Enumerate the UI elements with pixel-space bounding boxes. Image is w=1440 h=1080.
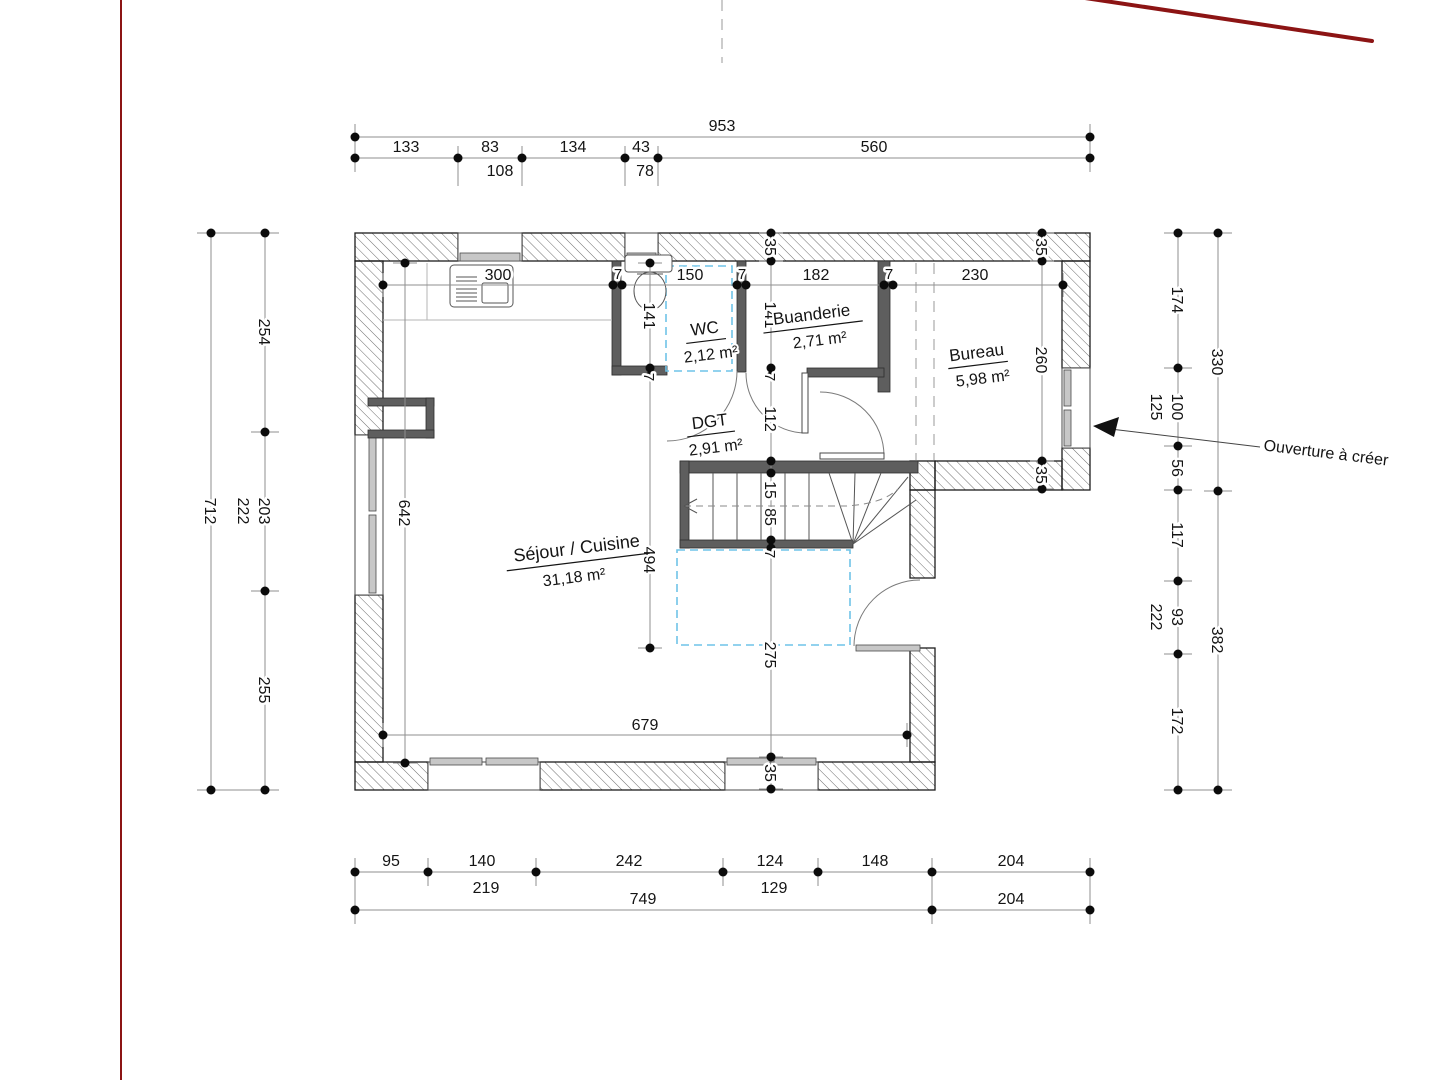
room-label-dgt: DGT 2,91 m² [684, 408, 744, 459]
dim-bureau-width: 230 [962, 267, 989, 284]
dim-left-1: 254 [255, 319, 272, 346]
dim-dgt-height: 112 [761, 406, 778, 432]
dim-stair15: 15 [761, 481, 778, 499]
stair-opening-dashed-zone [677, 550, 850, 645]
overhead-projection-lines [916, 263, 934, 460]
dim-right-1: 174 [1168, 287, 1185, 314]
dim-left-total: 712 [201, 498, 218, 525]
dim-wall7-e: 7 [761, 373, 778, 381]
dim-bottom-2: 140 [469, 853, 496, 870]
dim-wall7-a: 7 [614, 266, 622, 283]
dim-wc-depth: 141 [640, 303, 657, 330]
room-name-dgt: DGT [691, 410, 729, 433]
dim-top-2: 83 [481, 139, 499, 156]
dim-top-4: 43 [632, 139, 650, 156]
dim-right-2: 100 [1168, 394, 1185, 421]
dim-left-2: 203 [255, 498, 272, 525]
dim-wall35-a: 35 [761, 238, 778, 256]
dim-wall7-b: 7 [738, 266, 746, 283]
room-area-sejour: 31,18 m² [542, 566, 607, 591]
room-name-wc: WC [689, 317, 719, 339]
room-label-wc: WC 2,12 m² [679, 315, 739, 366]
sejour-east-door [854, 580, 920, 651]
sejour-bottom-window-1 [428, 758, 540, 790]
dim-win35: 35 [761, 764, 778, 782]
dim-left-sub: 222 [234, 498, 251, 525]
dim-top-1: 133 [393, 139, 420, 156]
dim-bottom-sub-1: 219 [473, 880, 500, 897]
staircase [684, 473, 916, 544]
dim-top-5: 560 [861, 139, 888, 156]
dim-top-sub-2: 78 [636, 163, 654, 180]
dim-kitchen: 300 [485, 267, 512, 284]
dim-mid-height: 494 [640, 547, 657, 574]
dim-wc-width: 150 [677, 267, 704, 284]
room-name-buanderie: Buanderie [772, 300, 851, 328]
dim-top-3: 134 [560, 139, 587, 156]
dim-wall7-d: 7 [640, 373, 657, 381]
windows [355, 233, 1090, 790]
dim-right-sub-2: 222 [1147, 604, 1164, 631]
kitchen-window [458, 233, 522, 261]
annotation-text: Ouverture à créer [1263, 437, 1390, 469]
room-area-bureau: 5,98 m² [955, 367, 1012, 391]
dim-bottom-3: 242 [616, 853, 643, 870]
room-area-dgt: 2,91 m² [688, 436, 745, 460]
dim-bureau-window: 260 [1032, 347, 1049, 374]
dim-tremie: 275 [761, 642, 778, 669]
dim-stair85: 85 [761, 508, 778, 526]
dim-wall35-b: 35 [1032, 238, 1049, 256]
dim-bottom-sub-2: 129 [761, 880, 788, 897]
page-corner-red-line [1085, 0, 1372, 41]
room-label-sejour: Séjour / Cuisine 31,18 m² [504, 529, 653, 594]
dim-bottom-6: 204 [998, 853, 1025, 870]
dim-left-3: 255 [255, 677, 272, 704]
dim-right-outer-2: 382 [1208, 627, 1225, 654]
dim-top-sub-1: 108 [487, 163, 514, 180]
sejour-left-window [355, 435, 383, 595]
stair-walk-line [684, 489, 898, 506]
dim-right-4: 117 [1168, 522, 1185, 548]
dim-sejour-window: 642 [395, 500, 412, 527]
bureau-door [820, 392, 884, 459]
room-label-bureau: Bureau 5,98 m² [946, 339, 1012, 391]
dim-right-sub-1: 125 [1147, 394, 1164, 421]
dim-wall35-c: 35 [1032, 466, 1049, 484]
room-area-buanderie: 2,71 m² [792, 329, 849, 353]
dim-bottom-total-2: 204 [998, 891, 1025, 908]
dim-wall7-c: 7 [885, 266, 893, 283]
annotation-ouverture: Ouverture à créer [1093, 417, 1390, 470]
floor-plan-page: 953 133 83 134 43 560 108 78 712 254 203… [0, 0, 1440, 1080]
dim-buanderie-width: 182 [803, 267, 830, 284]
room-name-bureau: Bureau [948, 340, 1005, 366]
dim-bottom-5: 148 [862, 853, 889, 870]
room-name-sejour: Séjour / Cuisine [512, 530, 641, 565]
stair-winders [829, 473, 916, 544]
dim-right-5: 93 [1168, 608, 1185, 626]
bureau-window-opening [1062, 368, 1090, 448]
floor-plan-canvas: 953 133 83 134 43 560 108 78 712 254 203… [0, 0, 1440, 1080]
fixtures [383, 255, 672, 320]
dim-bottom-total-1: 749 [630, 891, 657, 908]
dim-right-outer-1: 330 [1208, 349, 1225, 376]
dim-bottom-1: 95 [382, 853, 400, 870]
dim-right-3: 56 [1168, 459, 1185, 477]
dim-bottom-4: 124 [757, 853, 784, 870]
dim-wall7-f: 7 [761, 550, 778, 558]
room-area-wc: 2,12 m² [683, 343, 740, 367]
outer-walls [355, 233, 1090, 790]
annotation-arrowhead [1093, 417, 1119, 437]
dim-top-total: 953 [709, 118, 736, 135]
dim-right-6: 172 [1168, 708, 1185, 735]
dim-sejour-width: 679 [632, 717, 659, 734]
